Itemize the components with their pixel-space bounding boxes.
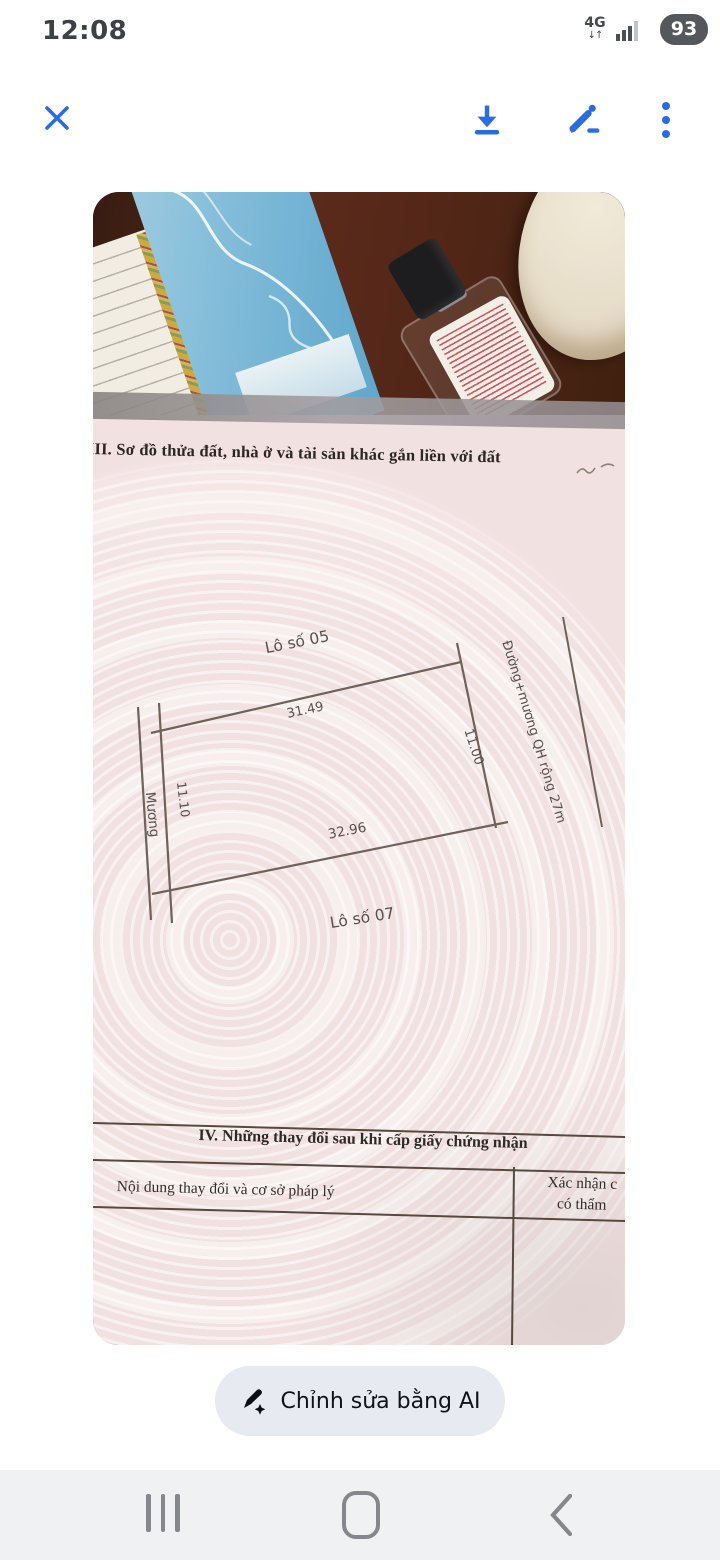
recents-button[interactable]	[146, 1494, 180, 1532]
table-column-divider	[512, 1167, 514, 1345]
back-chevron-icon	[553, 1496, 570, 1534]
handwritten-scribble	[577, 468, 595, 473]
close-button[interactable]	[35, 96, 79, 140]
home-button[interactable]	[342, 1491, 380, 1539]
data-arrows-icon: ↓↑	[578, 31, 612, 41]
top-edge-measure: 31.49	[286, 699, 326, 721]
road-line	[563, 617, 602, 827]
left-edge-measure: 11.10	[174, 781, 193, 818]
clock: 12:08	[42, 16, 127, 46]
table-header-confirmation: Xác nhận c có thẩm	[533, 1172, 625, 1217]
table-header-confirmation-line2: có thẩm	[533, 1193, 625, 1217]
edit-button[interactable]	[563, 98, 607, 142]
lot-07-label: Lô số 07	[329, 904, 396, 932]
table-header-confirmation-line1: Xác nhận c	[534, 1172, 625, 1196]
bottom-edge-measure: 32.96	[327, 820, 368, 843]
right-edge-measure: 11.00	[460, 727, 486, 767]
download-button[interactable]	[465, 98, 509, 142]
parcel-top-edge	[151, 662, 461, 733]
status-bar: 12:08 4G ↓↑ 93	[0, 0, 720, 64]
edit-with-ai-button[interactable]: Chỉnh sửa bằng AI	[215, 1366, 505, 1436]
ai-pen-sparkle-icon	[239, 1387, 267, 1415]
land-certificate-document: III. Sơ đồ thửa đất, nhà ở và tài sản kh…	[93, 415, 625, 1345]
photo-viewer-image[interactable]: III. Sơ đồ thửa đất, nhà ở và tài sản kh…	[93, 192, 625, 1345]
edit-with-ai-label: Chỉnh sửa bằng AI	[280, 1389, 480, 1414]
recents-icon	[146, 1494, 151, 1532]
more-options-button[interactable]	[644, 98, 688, 142]
network-type-label: 4G	[578, 16, 612, 30]
back-button[interactable]	[548, 1492, 574, 1538]
download-icon	[467, 100, 507, 140]
lot-05-label: Lô số 05	[263, 627, 330, 657]
network-indicator: 4G ↓↑	[578, 16, 612, 41]
close-icon	[41, 102, 73, 134]
edit-pen-icon	[565, 100, 605, 140]
road-label: Đường+mương QH rộng 27m	[498, 639, 568, 825]
overflow-menu-icon	[648, 98, 684, 142]
signal-strength-icon	[616, 20, 642, 42]
battery-indicator: 93	[660, 14, 708, 45]
